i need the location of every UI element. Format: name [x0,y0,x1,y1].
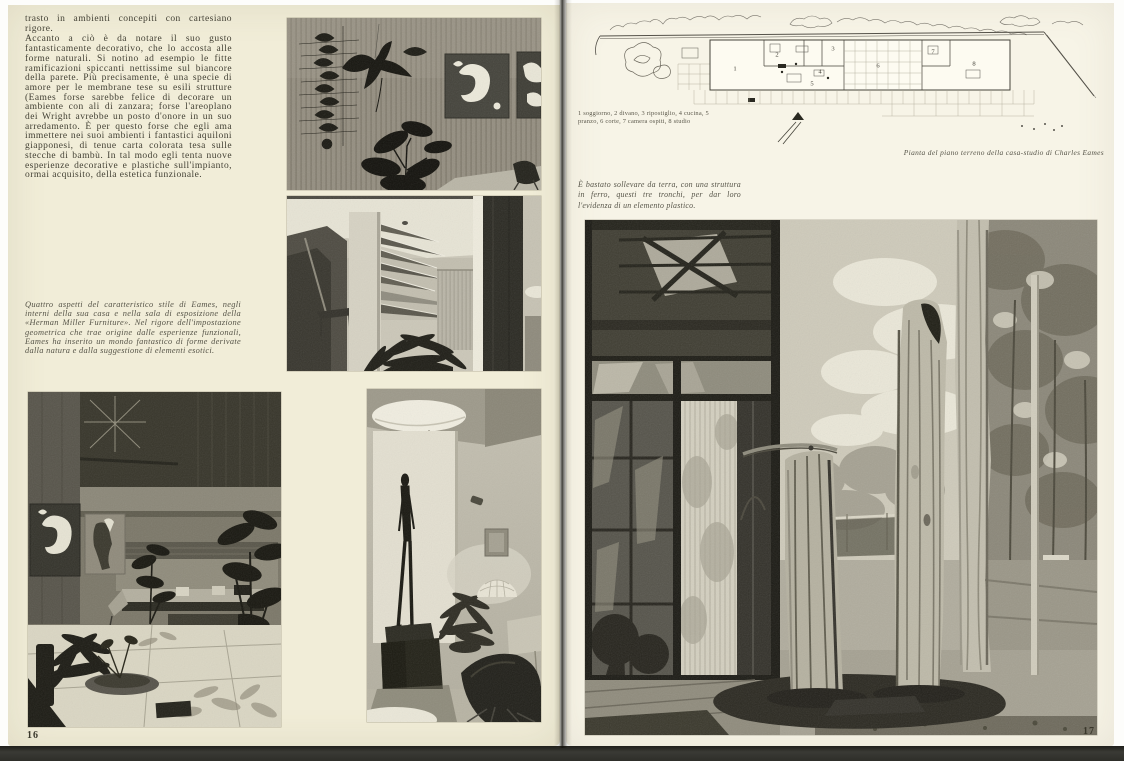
plan-room-number: 5 [810,81,813,88]
article-paragraph: Accanto a ciò è da notare il suo gusto f… [25,35,232,181]
photo-caption: È bastato sollevare da terra, con una st… [578,180,741,211]
plan-caption: Pianta del piano terreno della casa-stud… [844,148,1104,157]
magazine-spread: trasto in ambienti concepiti con cartesi… [0,0,1124,761]
plan-room-number: 6 [876,63,879,70]
page-number-right: 17 [1083,726,1095,737]
photo-interior-staircase [287,196,541,371]
plan-room-number: 1 [733,66,736,73]
photo-living-room [28,392,281,727]
photo-interior-kites [287,18,541,190]
floor-plan: 1 2 3 4 5 6 7 8 [582,8,1102,148]
plan-room-number: 7 [931,49,934,56]
article-paragraph: trasto in ambienti concepiti con cartesi… [25,15,232,34]
plan-room-number: 8 [972,61,975,68]
caption-left: Quattro aspetti del caratteristico stile… [25,300,241,355]
plan-room-number: 2 [775,52,778,59]
page-number-left: 16 [27,730,39,741]
page-left: trasto in ambienti concepiti con cartesi… [8,5,560,746]
scanner-bed [0,746,1124,761]
page-right: 1 2 3 4 5 6 7 8 1 soggiorno, 2 divano, 3… [566,3,1114,746]
article-text: trasto in ambienti concepiti con cartesi… [25,15,232,182]
plan-legend: 1 soggiorno, 2 divano, 3 ripostiglio, 4 … [578,110,712,126]
photo-sculpture-corner [367,389,541,722]
photo-house-exterior-trunks [585,220,1097,735]
plan-room-number: 4 [818,69,821,76]
plan-room-number: 3 [831,46,834,53]
